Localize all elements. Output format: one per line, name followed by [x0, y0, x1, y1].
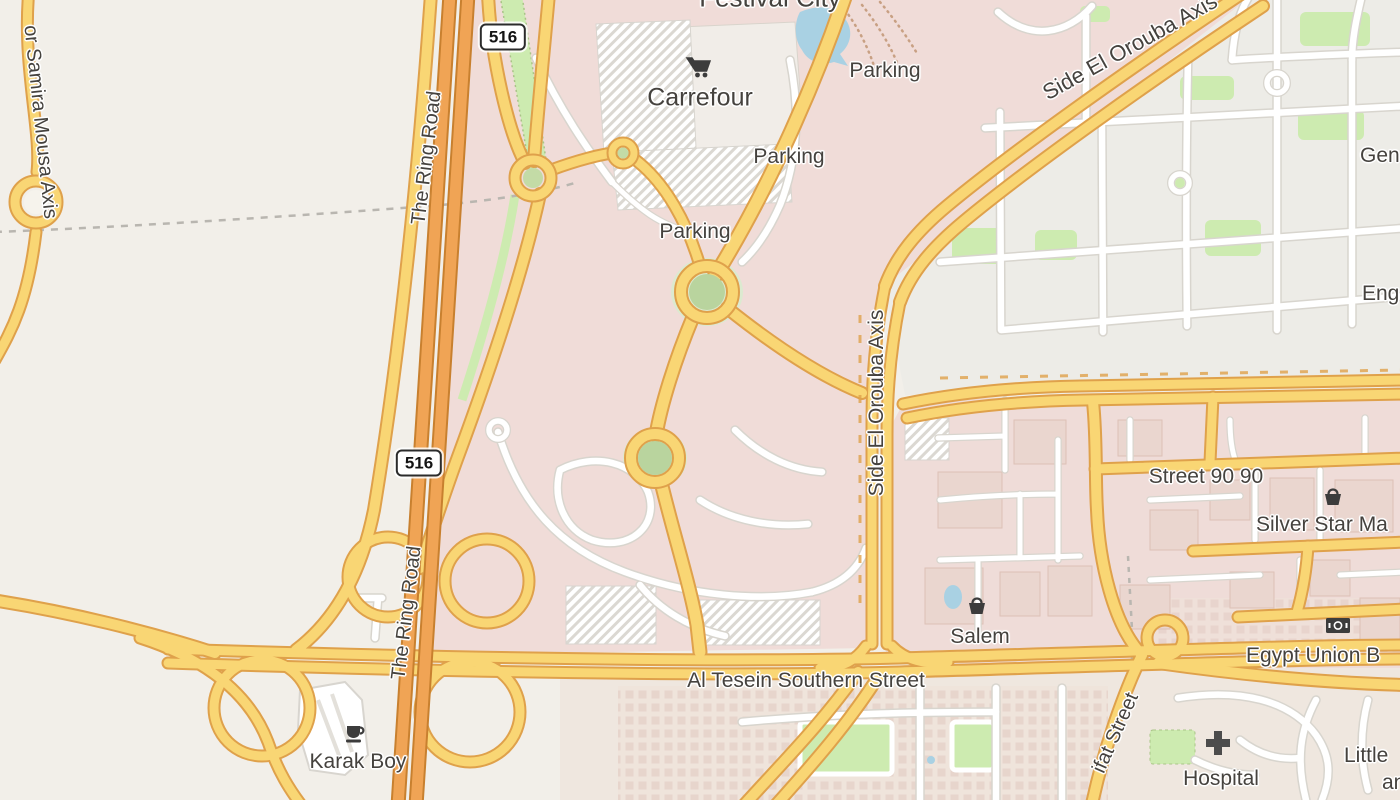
label-festival-city: Festival City	[699, 0, 841, 14]
label-little-2: an	[1382, 771, 1400, 795]
label-gen-cut: Gen	[1360, 144, 1400, 168]
route-shield-516-north: 516	[480, 24, 526, 51]
label-parking-south: Parking	[659, 220, 730, 244]
banknote-icon	[1326, 618, 1350, 633]
label-parking-mid: Parking	[753, 145, 824, 169]
label-carrefour: Carrefour	[647, 84, 753, 113]
label-eng-cut: Eng	[1362, 282, 1399, 306]
route-shield-516-south: 516	[396, 450, 442, 477]
coffee-cup-icon	[346, 726, 363, 743]
label-karak-boy: Karak Boy	[310, 750, 407, 774]
label-egypt-union: Egypt Union B	[1246, 644, 1380, 668]
label-orouba-axis-vertical: Side El Orouba Axis	[865, 310, 889, 497]
label-parking-north: Parking	[849, 59, 920, 83]
map-viewport[interactable]: 516 516 Festival City Carrefour Parking …	[0, 0, 1400, 800]
label-salem: Salem	[950, 625, 1010, 649]
label-hospital: Hospital	[1183, 767, 1259, 791]
label-street-90-90: Street 90 90	[1149, 465, 1263, 489]
label-silver-star-mall: Silver Star Ma	[1256, 513, 1388, 537]
label-al-tesein: Al Tesein Southern Street	[687, 669, 925, 693]
label-little: Little	[1344, 744, 1388, 768]
